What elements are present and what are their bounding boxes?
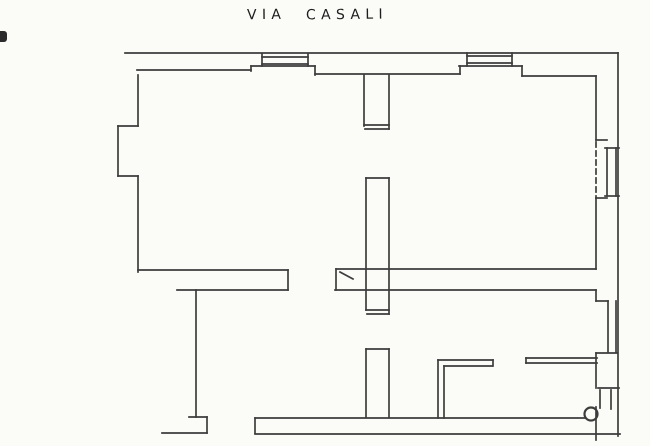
bottom-wall-inner-face: [255, 418, 585, 433]
left-wall-with-bay: [118, 75, 138, 272]
l-shaped-wall: [438, 360, 493, 418]
cross-wall-right: [335, 269, 596, 290]
top-window-right: [467, 53, 512, 66]
top-window-left: [262, 54, 308, 66]
cross-wall-left: [138, 270, 288, 290]
top-wall-inner-face: [137, 66, 596, 76]
partition-middle: [366, 178, 389, 314]
door-swing-mark: [340, 272, 353, 279]
floor-plan-drawing: [0, 0, 650, 446]
lower-right-wall: [526, 358, 597, 363]
lower-left-boundary: [189, 290, 207, 433]
outer-walls: [125, 53, 620, 436]
scanned-floorplan-sheet: VIA CASALI: [0, 0, 650, 446]
partition-upper: [364, 75, 389, 129]
partition-lower: [366, 349, 389, 417]
right-wall-with-windows: [596, 76, 619, 440]
